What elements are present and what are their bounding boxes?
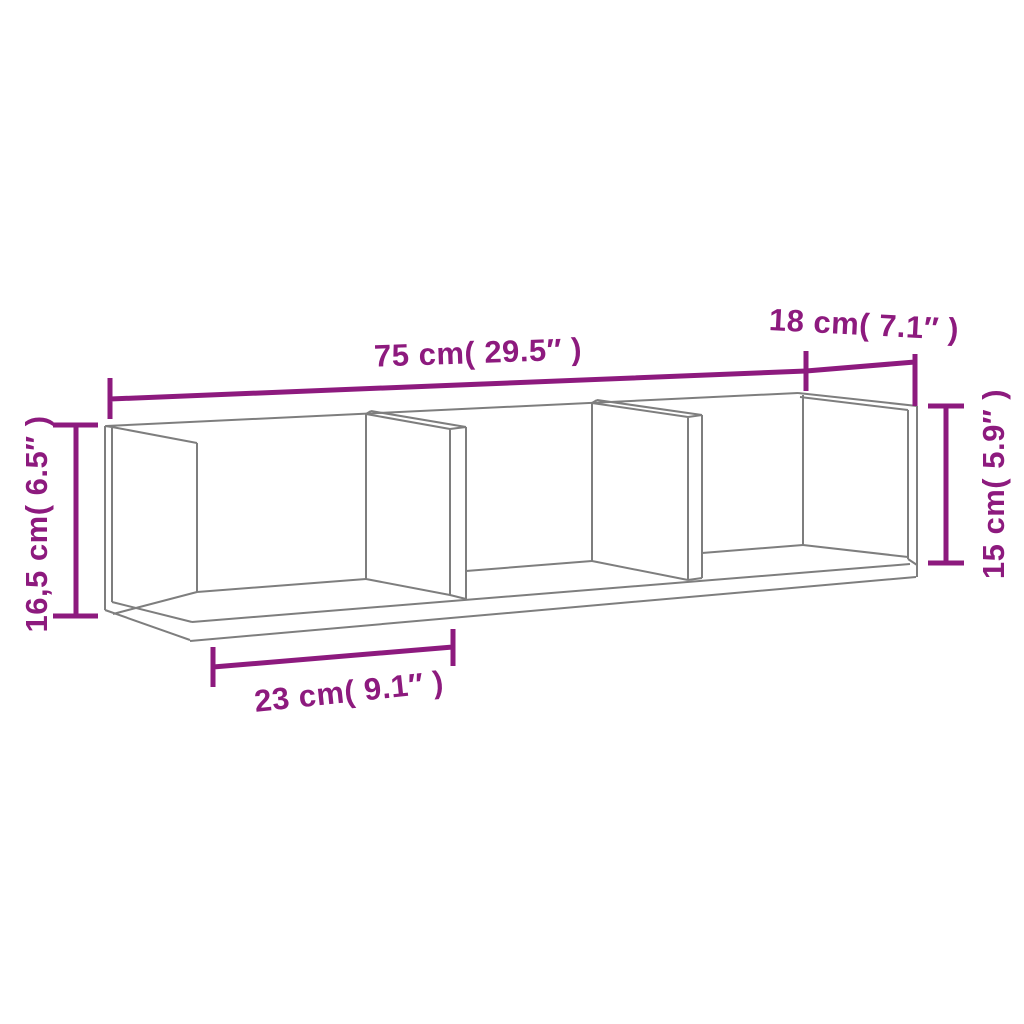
width-dimension-label: 75 cm( 29.5″ ) xyxy=(373,331,582,374)
shelf-line-drawing xyxy=(0,0,1024,1024)
bottom-panel-strip xyxy=(190,564,916,641)
right-side-panel xyxy=(798,393,917,577)
height-left-dimension-line xyxy=(53,425,98,616)
depth-dimension-line xyxy=(806,354,915,406)
compartment-floor-edges xyxy=(197,545,803,592)
height-left-dimension-label: 16,5 cm( 6.5″ ) xyxy=(19,415,55,632)
back-top-edge xyxy=(106,393,798,426)
height-right-dimension-label: 15 cm( 5.9″ ) xyxy=(976,389,1012,579)
product-dimension-diagram: 75 cm( 29.5″ ) 18 cm( 7.1″ ) 16,5 cm( 6.… xyxy=(0,0,1024,1024)
height-right-dimension-line xyxy=(928,406,964,563)
divider-2 xyxy=(592,400,702,580)
divider-1 xyxy=(366,411,466,599)
dimension-lines xyxy=(53,351,964,687)
shelf-outline xyxy=(105,393,917,641)
left-side-panel xyxy=(105,426,197,640)
